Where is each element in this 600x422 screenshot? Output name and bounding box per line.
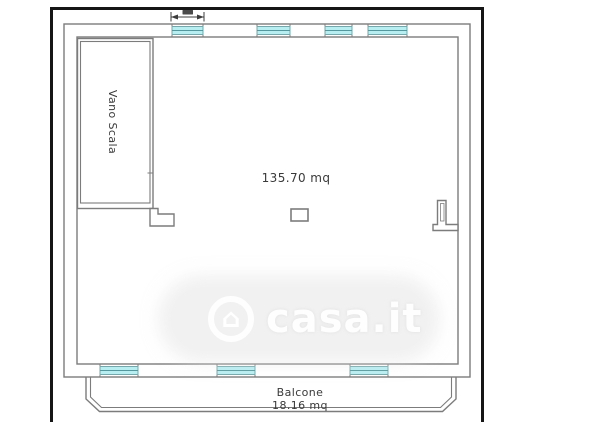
stairwell [78, 39, 175, 227]
house-icon: ⌂ [222, 306, 241, 332]
balcony-label: Balcone [277, 386, 324, 399]
wall-recess [433, 201, 458, 231]
main-area-label: 135.70 mq [262, 171, 331, 185]
stairwell-label: Vano Scala [106, 90, 119, 154]
door-jamb [150, 209, 174, 227]
watermark: ⌂ casa.it [170, 287, 428, 351]
floorplan-image: Vano Scala 135.70 mq Balcone 18.16 mq ⌂ … [0, 0, 600, 422]
dimension-label-blur [183, 10, 194, 15]
watermark-text: casa.it [266, 296, 423, 342]
column [291, 209, 308, 221]
balcony-area-label: 18.16 mq [272, 399, 328, 412]
floorplan-svg: Vano Scala 135.70 mq Balcone 18.16 mq [0, 0, 600, 422]
plan-frame [52, 9, 483, 422]
windows-bottom [100, 364, 388, 377]
balcony [86, 377, 456, 412]
watermark-logo: ⌂ [208, 296, 254, 342]
windows-top [172, 24, 407, 37]
dimension-marker [171, 10, 204, 22]
